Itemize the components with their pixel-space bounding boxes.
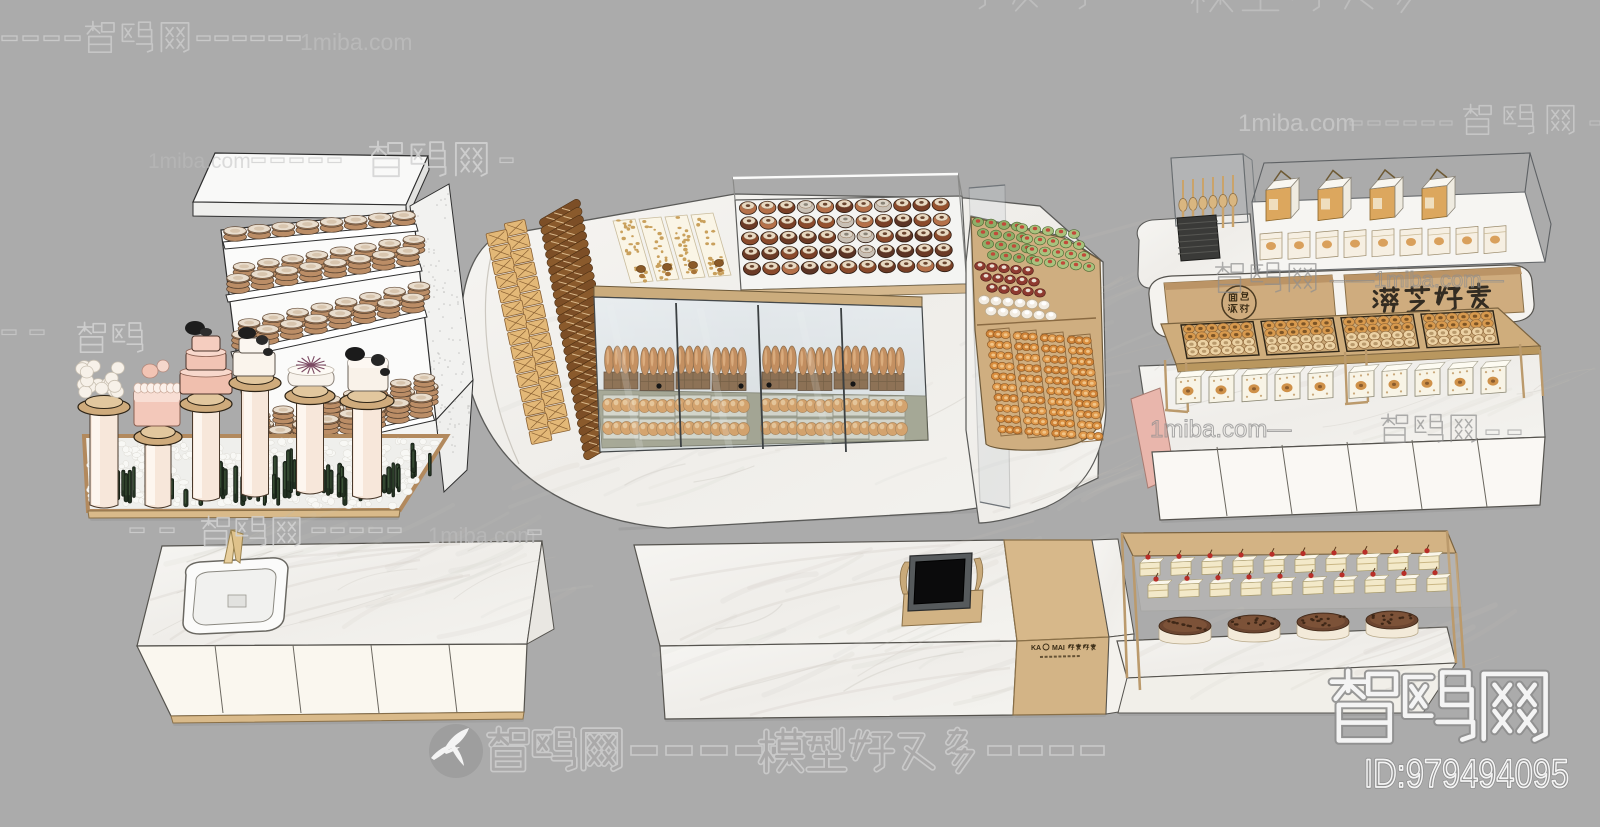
svg-text:1miba.com: 1miba.com [300,29,412,55]
svg-text:ID:979494095: ID:979494095 [1364,752,1569,796]
svg-text:1miba.com: 1miba.com [148,150,251,173]
svg-text:1miba.com: 1miba.com [1238,110,1355,137]
svg-text:1miba.com: 1miba.com [428,523,536,548]
svg-text:MAI: MAI [1052,645,1065,652]
svg-text:——1miba.com—: ——1miba.com— [1330,267,1504,292]
svg-text:1miba.com—: 1miba.com— [1150,416,1291,443]
svg-text:KA: KA [1031,645,1041,652]
